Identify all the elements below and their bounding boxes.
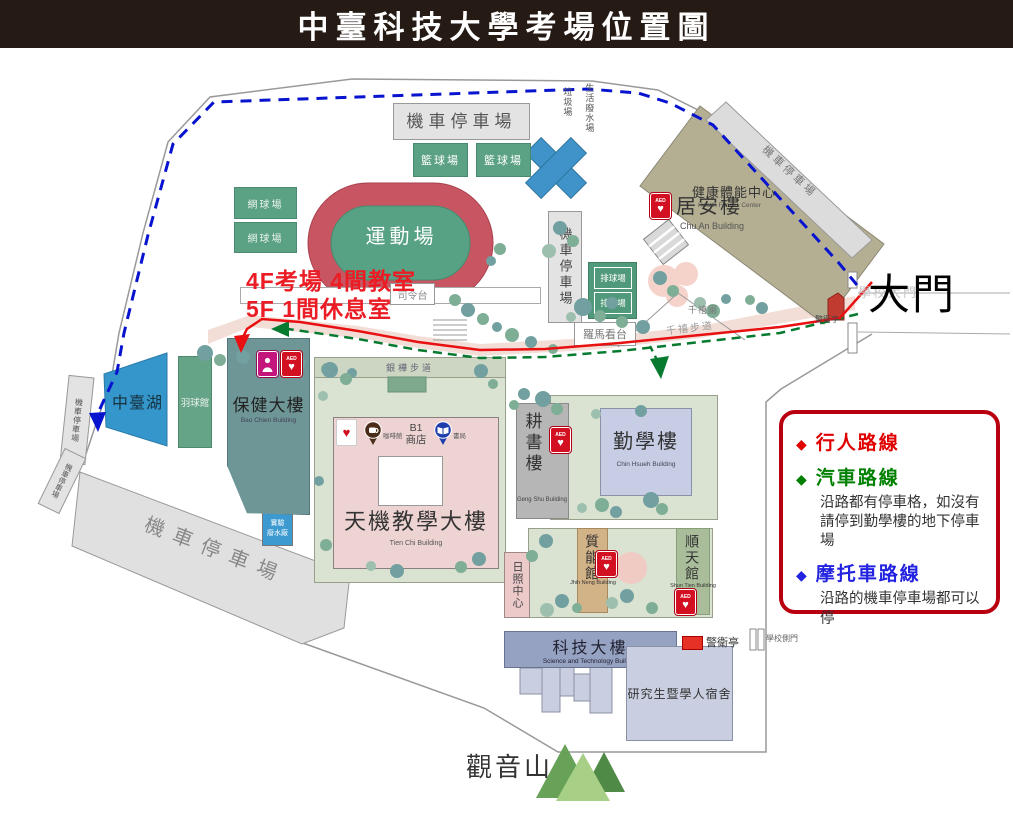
bookstore-icon xyxy=(433,421,453,446)
dorm-label: 研究生暨學人宿舍 xyxy=(627,685,731,702)
garbage-label: 垃圾場 xyxy=(562,87,572,117)
heart-icon: ♥ xyxy=(682,600,689,610)
guard-booth-south-label: 警衛亭 xyxy=(706,637,739,650)
bao-chien-label-en: Bao Chien Building xyxy=(227,417,310,424)
heart-icon: ♥ xyxy=(657,204,664,214)
aed-icon-jhih-neng: AED ♥ xyxy=(596,551,617,577)
coffee-shop-icon xyxy=(363,421,383,446)
basketball-court-1: 籃球場 xyxy=(413,143,468,177)
millennium-garden-label: 千禧園 xyxy=(688,305,718,315)
tien-chi-courtyard xyxy=(378,456,443,506)
sci-tech-label-en: Science and Technology Building xyxy=(543,658,638,665)
side-gate-label: 學校側門 xyxy=(766,634,798,643)
chin-hsueh-label: 勤學樓 xyxy=(600,431,692,454)
legend-car-note: 沿路都有停車格，如沒有請停到勤學樓的地下停車場 xyxy=(820,494,986,551)
roman-stand: 羅馬看台 xyxy=(574,322,636,346)
grevillea-trail-label: 銀樺步道 xyxy=(386,361,434,374)
diamond-icon: ◆ xyxy=(796,567,807,584)
basketball-court-2-label: 籃球場 xyxy=(484,152,523,168)
chu-an-label: 居安樓 xyxy=(676,196,742,219)
day-care-center: 日照中心 xyxy=(504,552,530,618)
aed-icon-geng-shu: AED ♥ xyxy=(550,427,571,453)
nursing-room-icon-bao-chien xyxy=(257,351,278,377)
exam-annotation-line2: 5F 1間休息室 xyxy=(246,290,392,324)
route-motorcycle-arrow xyxy=(89,412,106,432)
roman-stand-label: 羅馬看台 xyxy=(583,326,627,342)
badminton-hall-label: 羽球館 xyxy=(181,395,210,409)
volleyball-area: 排球場 排球場 xyxy=(588,262,637,319)
moto-parking-north: 機車停車場 xyxy=(393,103,530,140)
heart-icon: ♥ xyxy=(603,562,610,572)
tien-chi-label: 天機教學大樓 xyxy=(333,509,499,534)
coffee-label: 咖啡館 xyxy=(383,433,403,440)
tennis-court-1: 網球場 xyxy=(234,187,297,219)
diamond-icon: ◆ xyxy=(796,436,807,453)
moto-parking-mid: 機車停車場 xyxy=(548,211,582,323)
legend-item-pedestrian: ◆ 行人路線 xyxy=(796,428,986,455)
tennis-court-2-label: 網球場 xyxy=(248,230,284,245)
jhih-neng-label-en: Jhih Neng Building xyxy=(568,580,618,586)
route-car-arrow-south xyxy=(650,356,669,379)
aed-icon-bao-chien: AED ♥ xyxy=(281,351,302,377)
nursing-figure xyxy=(261,357,274,372)
heart-icon: ♥ xyxy=(557,438,564,448)
volleyball-court-2: 排球場 xyxy=(594,292,632,314)
podium-stairs xyxy=(433,320,467,340)
grevillea-trail: 銀樺步道 xyxy=(315,358,505,378)
main-gate-label: 大門 xyxy=(868,271,956,319)
shun-tien-label: 順天館 xyxy=(684,534,700,582)
lake-label: 中臺湖 xyxy=(112,395,163,413)
moto-parking-north-label: 機車停車場 xyxy=(407,112,517,132)
moto-parking-west-1-label: 機車停車場 xyxy=(69,397,85,443)
wastewater-label: 生活廢水場 xyxy=(584,83,594,133)
waste-facility-shape xyxy=(526,138,587,199)
bookstore-label: 書局 xyxy=(453,433,466,440)
guanyin-label: 觀音山 xyxy=(466,753,553,783)
millennium-pond xyxy=(648,262,698,307)
volleyball-court-1-label: 排球場 xyxy=(600,272,626,284)
day-care-label: 日照中心 xyxy=(509,561,525,609)
title-bar: 中臺科技大學考場位置圖 xyxy=(0,0,1013,48)
heart-icon: ♥ xyxy=(343,425,351,440)
tien-chi-label-en: Tien Chi Building xyxy=(333,540,499,548)
legend-car-label: 汽車路線 xyxy=(816,463,900,490)
heart-icon: ♥ xyxy=(288,362,295,372)
legend-pedestrian-label: 行人路線 xyxy=(816,428,900,455)
tennis-court-1-label: 網球場 xyxy=(248,196,284,211)
aed-icon-shun-tien: AED ♥ xyxy=(675,589,696,615)
legend-item-motorcycle: ◆ 摩托車路線 xyxy=(796,559,986,586)
legend-item-car: ◆ 汽車路線 xyxy=(796,463,986,490)
volleyball-court-1: 排球場 xyxy=(594,267,632,289)
lab-wastewater-plant: 實驗 廢水廠 xyxy=(262,511,293,546)
legend-motorcycle-note: 沿路的機車停車場都可以停 xyxy=(820,590,986,628)
moto-parking-mid-label: 機車停車場 xyxy=(556,227,575,307)
page-title: 中臺科技大學考場位置圖 xyxy=(298,2,716,47)
stadium-label: 運動場 xyxy=(350,226,453,249)
sci-tech-label: 科技大樓 xyxy=(552,634,628,658)
badminton-hall: 羽球館 xyxy=(178,356,212,448)
tennis-court-2: 網球場 xyxy=(234,222,297,253)
aed-icon-chu-an: AED ♥ xyxy=(650,193,671,219)
side-gate-structure xyxy=(750,629,764,650)
geng-shu-label: 耕書樓 xyxy=(522,412,542,475)
basketball-court-2: 籃球場 xyxy=(476,143,531,177)
route-legend: ◆ 行人路線 ◆ 汽車路線 沿路都有停車格，如沒有請停到勤學樓的地下停車場 ◆ … xyxy=(779,410,1000,614)
bao-chien-label: 保健大樓 xyxy=(227,396,310,416)
moto-parking-west-2: 機車停車場 xyxy=(38,448,87,514)
diamond-icon: ◆ xyxy=(796,471,807,488)
health-station-icon-tien-chi: ♥ xyxy=(336,419,357,446)
chin-hsueh-label-en: Chin Hsueh Building xyxy=(600,461,692,468)
campus-map: 機車停車場 籃球場 籃球場 網球場 網球場 司令台 機車停車場 排球場 排球場 … xyxy=(0,0,1013,818)
guard-booth-south xyxy=(682,636,703,650)
chu-an-label-en: Chu An Building xyxy=(680,221,744,231)
dorm-building: 研究生暨學人宿舍 xyxy=(626,646,733,741)
sci-tech-annex xyxy=(520,663,612,713)
millennium-trail-label: 千禧步道 xyxy=(666,318,739,338)
gate-guard-label: 警衛亭 xyxy=(815,315,839,324)
basketball-court-1-label: 籃球場 xyxy=(421,152,460,168)
moto-parking-west-2-label: 機車停車場 xyxy=(49,462,75,501)
geng-shu-label-en: Geng Shu Building xyxy=(512,497,572,504)
volleyball-court-2-label: 排球場 xyxy=(600,297,626,309)
b1-shop-label: B1 商店 xyxy=(401,422,431,446)
legend-motorcycle-label: 摩托車路線 xyxy=(816,559,921,586)
lab-wastewater-label: 實驗 廢水廠 xyxy=(267,519,288,537)
